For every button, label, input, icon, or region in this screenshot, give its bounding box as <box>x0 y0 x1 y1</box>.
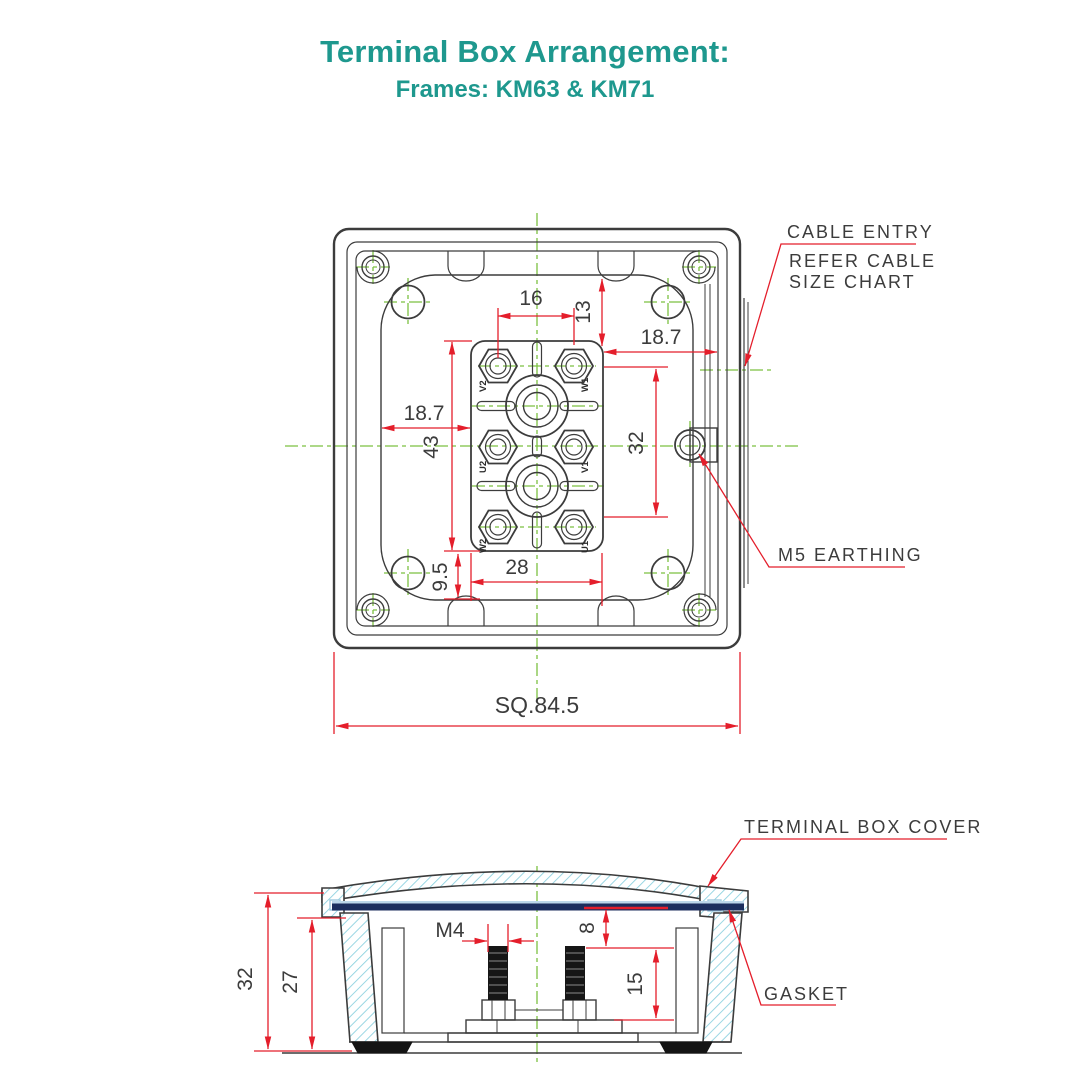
hex-terminal-v1 <box>555 431 593 464</box>
stud-nut <box>563 1000 596 1020</box>
terminal-stud <box>488 946 508 1000</box>
dim-terminal-pitch: 16 <box>519 287 542 310</box>
section-view: 32 27 M4 8 15 <box>234 817 982 1066</box>
foot <box>660 1042 712 1053</box>
dim-top-offset: 13 <box>572 300 595 323</box>
cable-entry-label: CABLE ENTRY <box>787 222 934 242</box>
terminal-label-w1: W1 <box>580 377 591 392</box>
gasket-label: GASKET <box>764 984 849 1004</box>
terminal-label-u2: U2 <box>478 461 489 473</box>
technical-drawing: V2 W1 U2 V1 W2 U1 <box>0 0 1080 1080</box>
stud-nut <box>482 1000 515 1020</box>
terminal-label-v1: V1 <box>580 461 591 473</box>
gasket <box>332 901 744 911</box>
annotations-section-view: TERMINAL BOX COVER GASKET <box>708 817 982 1005</box>
cable-entry-note-1: REFER CABLE <box>789 251 936 271</box>
dimensions-section-view: 32 27 M4 8 15 <box>234 893 674 1051</box>
dim-stud-length: 15 <box>624 972 647 995</box>
dim-overall-height: 32 <box>234 967 257 990</box>
dim-row-span: 32 <box>625 431 648 454</box>
cable-entry-note-2: SIZE CHART <box>789 272 916 292</box>
cover-screws <box>362 256 710 621</box>
earthing-boss <box>675 428 717 462</box>
foot <box>352 1042 412 1053</box>
annotations-top-view: CABLE ENTRY REFER CABLE SIZE CHART M5 EA… <box>699 222 936 567</box>
terminal-label-v2: V2 <box>478 380 489 392</box>
terminal-base <box>448 946 638 1042</box>
terminal-box-cover <box>322 871 748 918</box>
hex-terminal-u2 <box>479 431 517 464</box>
dim-right-offset: 18.7 <box>641 326 682 349</box>
dim-overall-square: SQ.84.5 <box>495 692 579 718</box>
drawing-sheet: Terminal Box Arrangement: Frames: KM63 &… <box>0 0 1080 1080</box>
dim-bottom-offset: 9.5 <box>429 562 452 591</box>
cover-label: TERMINAL BOX COVER <box>744 817 982 837</box>
terminal-stud <box>565 946 585 1000</box>
cover-tab <box>598 251 634 281</box>
terminal-label-u1: U1 <box>580 540 591 553</box>
dim-block-height: 43 <box>420 435 443 458</box>
earthing-label: M5 EARTHING <box>778 545 923 565</box>
box-body <box>282 913 742 1053</box>
dim-block-width: 28 <box>505 556 528 579</box>
cover-tab <box>448 251 484 281</box>
dim-left-offset: 18.7 <box>404 402 445 425</box>
dim-inner-height: 27 <box>279 970 302 993</box>
dim-stud-size: M4 <box>435 919 464 942</box>
top-view: V2 W1 U2 V1 W2 U1 <box>285 213 936 734</box>
dim-cover-clearance: 8 <box>576 922 599 934</box>
